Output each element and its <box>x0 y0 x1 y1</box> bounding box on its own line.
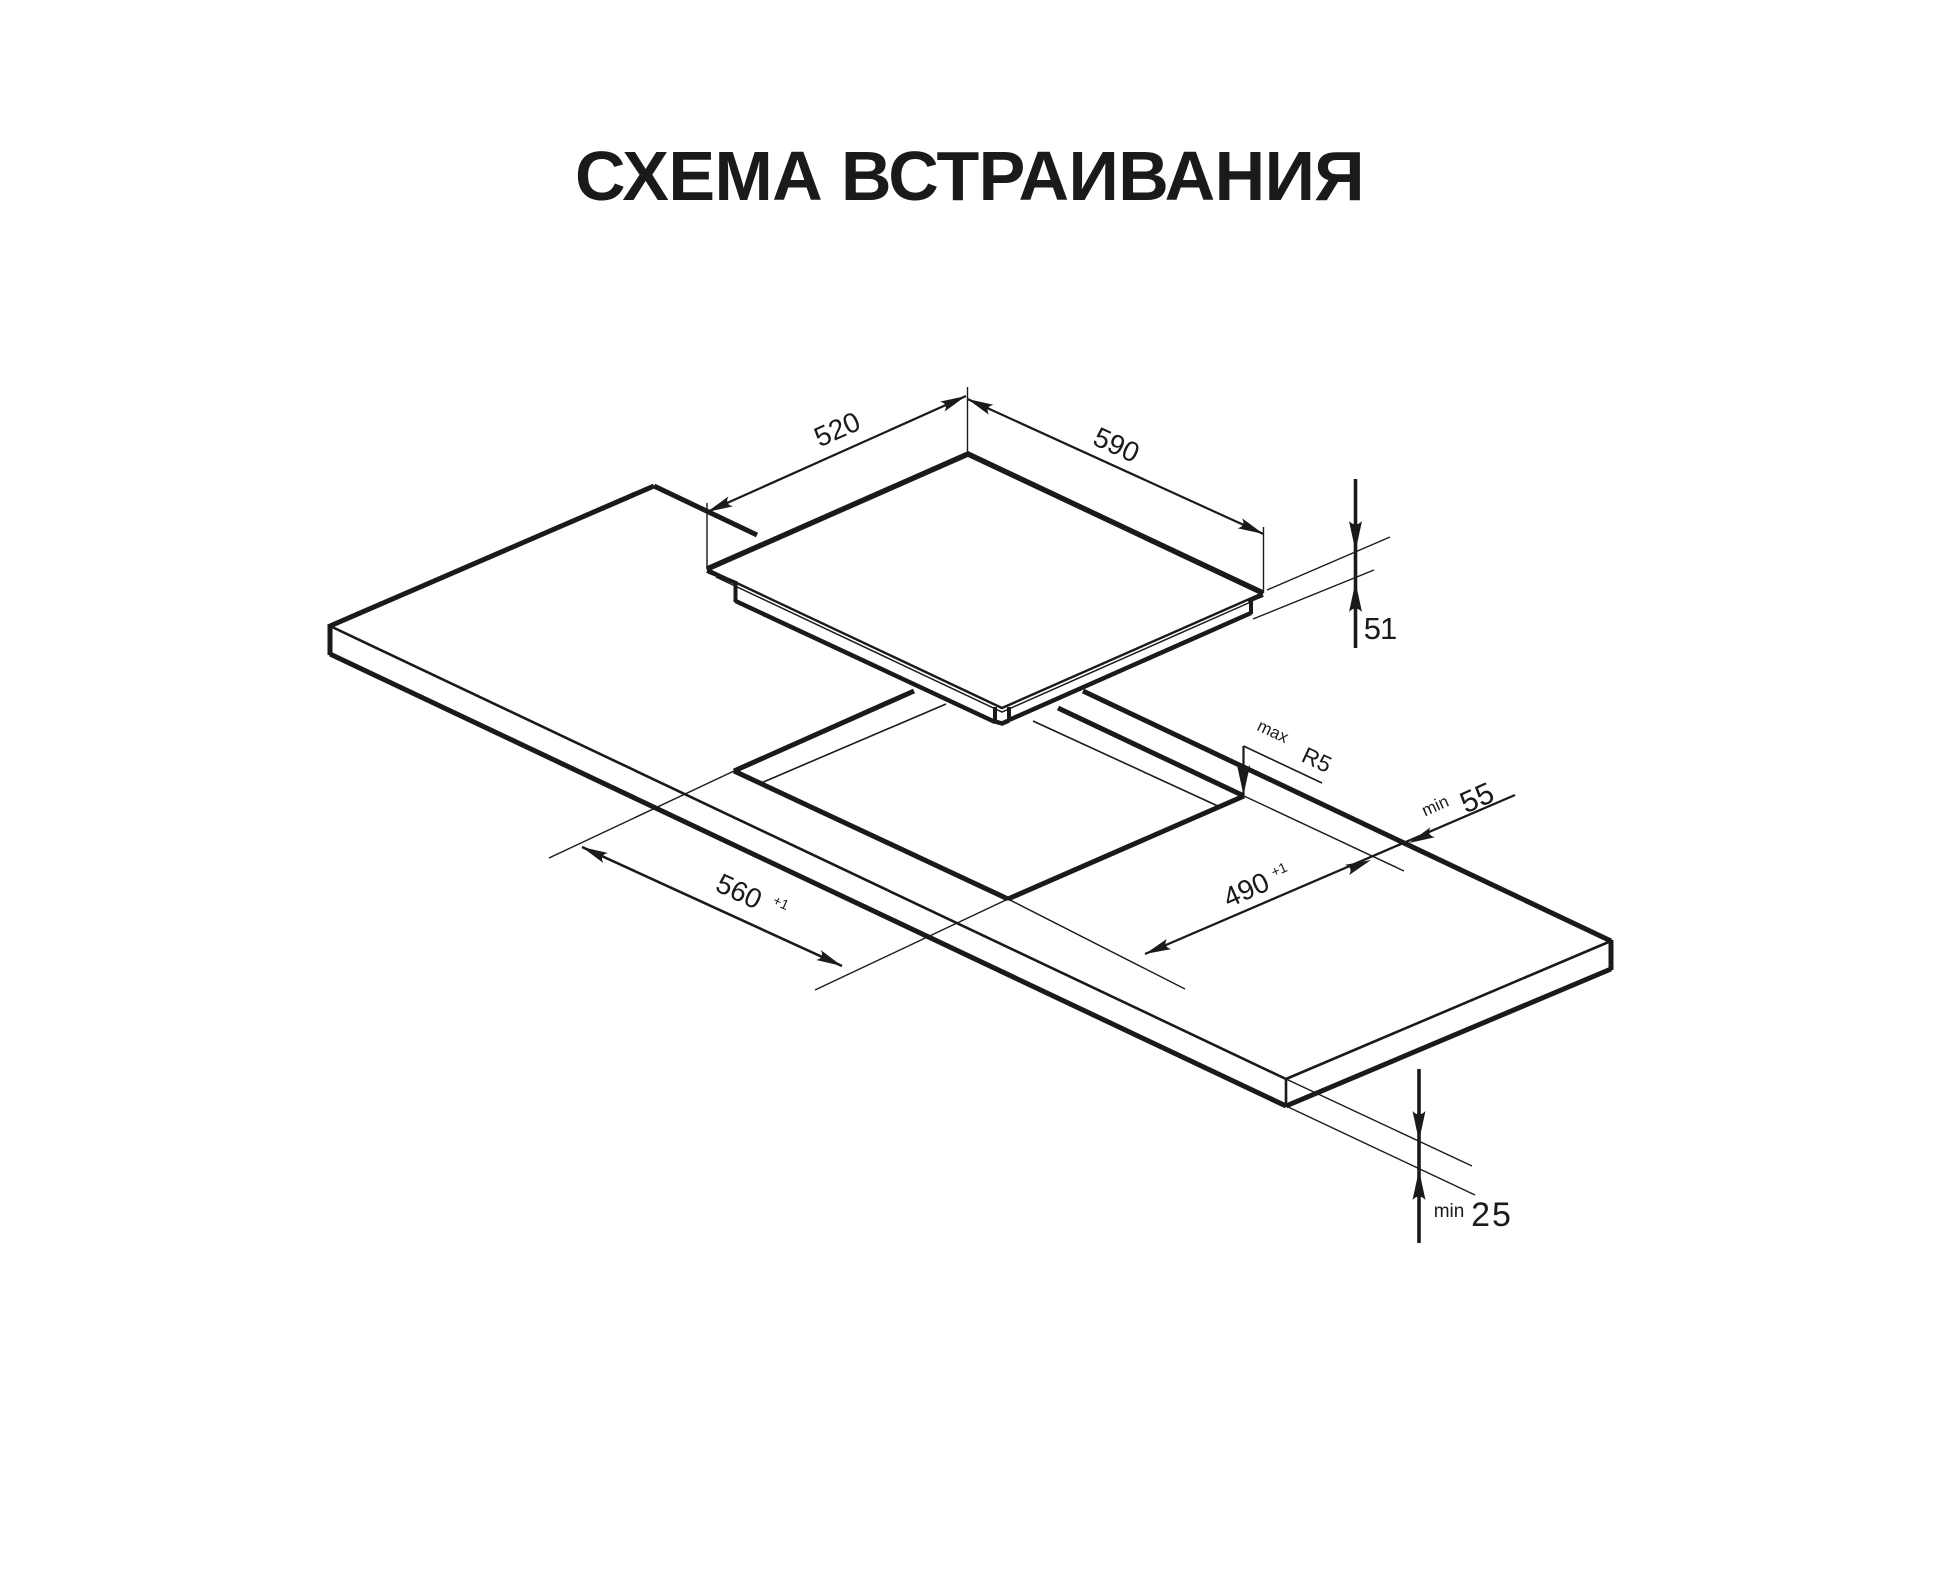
svg-text:+1: +1 <box>770 892 791 913</box>
svg-text:+1: +1 <box>1268 859 1289 880</box>
svg-text:590: 590 <box>1089 421 1144 469</box>
svg-text:490: 490 <box>1218 866 1273 913</box>
svg-text:min: min <box>1419 792 1452 821</box>
svg-text:R5: R5 <box>1298 742 1336 778</box>
svg-text:51: 51 <box>1364 611 1396 646</box>
svg-text:max: max <box>1254 716 1292 747</box>
svg-text:min: min <box>1434 1201 1465 1222</box>
svg-text:55: 55 <box>1455 776 1499 820</box>
svg-text:25: 25 <box>1471 1196 1513 1234</box>
svg-text:560: 560 <box>711 867 766 915</box>
